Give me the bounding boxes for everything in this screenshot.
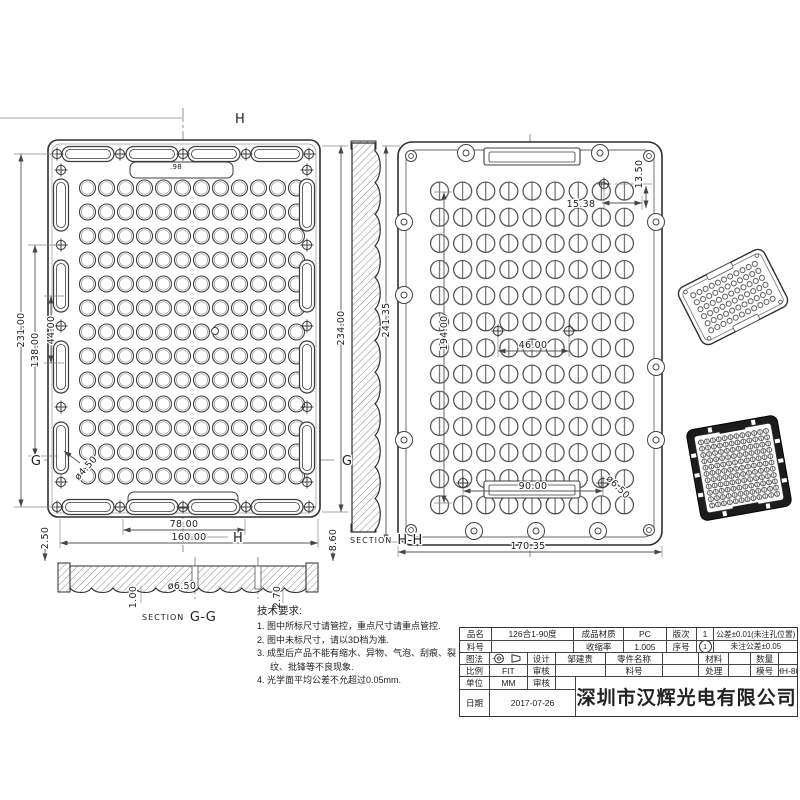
dim-right-window-width: 90.00 bbox=[519, 481, 548, 492]
serial-value: 1 bbox=[697, 641, 715, 652]
material-value: PC bbox=[624, 628, 667, 640]
side-section-view bbox=[351, 141, 380, 532]
product-name-label: 品名 bbox=[460, 628, 492, 640]
dim-left-small-height: 44.00 bbox=[46, 316, 57, 345]
iso-view-front bbox=[676, 247, 791, 348]
title-block-row-3: 图法 设计 邹建贵 零件名称 材料 数量 bbox=[460, 653, 797, 665]
section-marker-g-left: G bbox=[31, 454, 41, 469]
part-name-label: 零件名称 bbox=[606, 653, 664, 664]
dim-section-right-thickness: 8.60 bbox=[328, 529, 339, 551]
company-name: 深圳市汉辉光电有限公司 bbox=[576, 677, 797, 716]
mold-no-label: 模号 bbox=[751, 665, 779, 676]
section-marker-h-bottom: H bbox=[233, 531, 243, 546]
dim-right-pitch-y: 13.50 bbox=[634, 160, 645, 189]
dim-right-total-height: 241.35 bbox=[381, 302, 392, 337]
dim-lens-note: .98 bbox=[170, 163, 182, 171]
tech-requirement-item: 2. 图中未标尺寸，请以3D档为准. bbox=[257, 634, 459, 648]
part-name-value bbox=[663, 653, 699, 664]
title-block: 品名 126合1-90度 成品材质 PC 版次 1 公差±0.01(未注孔位置)… bbox=[459, 627, 798, 717]
product-name-value: 126合1-90度 bbox=[492, 628, 575, 640]
dim-bottom-outer-width: 160.00 bbox=[171, 532, 206, 543]
lens-grid-front bbox=[78, 176, 306, 488]
mold-no-value: HH-80 bbox=[779, 665, 797, 676]
part-no2-value bbox=[663, 665, 699, 676]
unit-label: 单位 bbox=[460, 677, 490, 689]
section-marker-h-top: H bbox=[235, 112, 245, 127]
dim-right-center-width: 46.00 bbox=[519, 340, 548, 351]
title-block-row-2: 料号 收缩率 1.005 序号 1 未注公差±0.05 bbox=[460, 641, 797, 653]
dim-section-left-thickness: 2.50 bbox=[40, 527, 51, 549]
dim-gg-thickness1: 1.00 bbox=[128, 586, 139, 608]
projection-label: 图法 bbox=[460, 653, 490, 664]
title-block-row-1: 品名 126合1-90度 成品材质 PC 版次 1 公差±0.01(未注孔位置) bbox=[460, 628, 797, 641]
section-gg-letters: G-G bbox=[190, 610, 216, 625]
dim-left-right-height: 234.00 bbox=[336, 310, 347, 345]
quantity-label: 数量 bbox=[751, 653, 779, 664]
title-block-bottom: 单位 MM 审核 日期 2017-07-26 深圳市汉辉光电有限公司 bbox=[460, 677, 797, 716]
version-label: 版次 bbox=[667, 628, 697, 640]
tech-requirement-item: 1. 图中所标尺寸请管控，重点尺寸请重点管控. bbox=[257, 620, 459, 634]
part-no-label: 料号 bbox=[460, 641, 492, 652]
tolerance-note-2: 未注公差±0.05 bbox=[714, 641, 797, 652]
dim-right-inner-height: 194.00 bbox=[439, 315, 450, 350]
title-block-row-4: 比例 FIT 审核 料号 处理 模号 HH-80 bbox=[460, 665, 797, 677]
quantity-value bbox=[779, 653, 797, 664]
check2-value bbox=[556, 677, 575, 689]
check-value bbox=[556, 665, 606, 676]
tolerance-note-1: 公差±0.01(未注孔位置) bbox=[714, 628, 797, 640]
section-marker-g-right: G bbox=[342, 454, 352, 469]
part-no2-label: 料号 bbox=[606, 665, 664, 676]
date-value: 2017-07-26 bbox=[490, 690, 575, 716]
scale-value: FIT bbox=[490, 665, 528, 676]
treatment-value bbox=[729, 665, 751, 676]
dim-bottom-inner-width: 78.00 bbox=[170, 519, 199, 530]
dim-gg-hole: ø6.50 bbox=[168, 581, 196, 592]
designer-name: 邹建贵 bbox=[556, 653, 606, 664]
treatment-label: 处理 bbox=[699, 665, 729, 676]
shrinkage-value: 1.005 bbox=[624, 641, 667, 652]
check2-label: 审核 bbox=[528, 677, 556, 689]
serial-label: 序号 bbox=[667, 641, 697, 652]
dim-left-total-height: 231.00 bbox=[16, 312, 27, 347]
section-hh-word: SECTION bbox=[350, 536, 392, 545]
tech-requirement-item: 4. 光学面平均公差不允超过0.05mm. bbox=[257, 674, 459, 688]
design-label: 设计 bbox=[528, 653, 556, 664]
version-value: 1 bbox=[697, 628, 715, 640]
part-no-value bbox=[492, 641, 575, 652]
projection-symbol-cell bbox=[490, 653, 528, 664]
dim-right-outer-width: 170.35 bbox=[510, 541, 545, 552]
scale-label: 比例 bbox=[460, 665, 490, 676]
tech-requirement-item: 3. 成型后产品不能有缩水、异物、气泡、刮痕、裂纹、批锋等不良现象. bbox=[257, 647, 459, 674]
check-label: 审核 bbox=[528, 665, 556, 676]
section-gg-word: SECTION bbox=[142, 613, 184, 622]
title-block-bottom-left: 单位 MM 审核 日期 2017-07-26 bbox=[460, 677, 576, 716]
tech-requirements: 技术要求: 1. 图中所标尺寸请管控，重点尺寸请重点管控. 2. 图中未标尺寸，… bbox=[257, 603, 459, 688]
section-hh-letters: H-H bbox=[397, 533, 422, 548]
first-angle-projection-icon bbox=[491, 653, 525, 664]
tech-requirements-title: 技术要求: bbox=[257, 603, 459, 618]
serial-circled-number: 1 bbox=[699, 641, 712, 652]
material-label: 成品材质 bbox=[574, 628, 624, 640]
dim-left-mid-height: 138.00 bbox=[30, 332, 41, 367]
engineering-drawing-sheet: 231.00 138.00 44.00 234.00 241.35 194.00… bbox=[0, 0, 800, 800]
raw-material-label: 材料 bbox=[699, 653, 729, 664]
iso-view-back bbox=[686, 415, 793, 522]
unit-value: MM bbox=[490, 677, 528, 689]
shrinkage-label: 收缩率 bbox=[574, 641, 624, 652]
dim-right-pitch-x: 15.38 bbox=[567, 199, 596, 210]
date-label: 日期 bbox=[460, 690, 490, 716]
raw-material-value bbox=[729, 653, 751, 664]
